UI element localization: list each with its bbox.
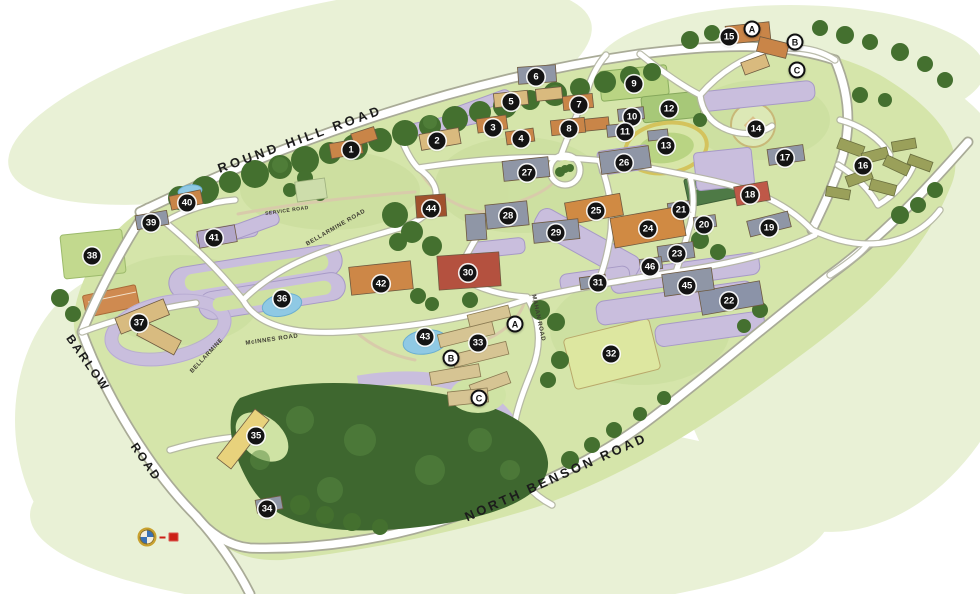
map-marker-17[interactable]: 17	[777, 150, 794, 167]
map-marker-30[interactable]: 30	[460, 265, 477, 282]
map-marker-25[interactable]: 25	[588, 203, 605, 220]
compass-rose	[138, 528, 179, 547]
map-marker-37[interactable]: 37	[131, 315, 148, 332]
map-marker-40[interactable]: 40	[179, 195, 196, 212]
map-marker-43[interactable]: 43	[417, 329, 434, 346]
north-indicator-icon	[169, 533, 179, 542]
markers-layer: 1234567891011121314151617181920212223242…	[0, 0, 980, 594]
map-marker-21[interactable]: 21	[673, 202, 690, 219]
compass-pointer-icon	[160, 536, 166, 538]
map-marker-b[interactable]: B	[443, 350, 460, 367]
compass-icon	[138, 528, 157, 547]
map-marker-11[interactable]: 11	[617, 124, 634, 141]
map-marker-33[interactable]: 33	[470, 335, 487, 352]
map-marker-29[interactable]: 29	[548, 225, 565, 242]
map-marker-45[interactable]: 45	[679, 278, 696, 295]
map-marker-27[interactable]: 27	[519, 165, 536, 182]
map-marker-2[interactable]: 2	[429, 133, 446, 150]
map-marker-12[interactable]: 12	[661, 101, 678, 118]
map-marker-15[interactable]: 15	[721, 29, 738, 46]
map-marker-14[interactable]: 14	[748, 121, 765, 138]
map-marker-5[interactable]: 5	[503, 94, 520, 111]
map-marker-46[interactable]: 46	[642, 259, 659, 276]
map-marker-18[interactable]: 18	[742, 187, 759, 204]
map-marker-a[interactable]: A	[744, 21, 761, 38]
map-marker-19[interactable]: 19	[761, 220, 778, 237]
map-marker-44[interactable]: 44	[423, 201, 440, 218]
map-marker-4[interactable]: 4	[513, 131, 530, 148]
map-marker-20[interactable]: 20	[696, 217, 713, 234]
map-marker-26[interactable]: 26	[616, 155, 633, 172]
map-marker-3[interactable]: 3	[485, 120, 502, 137]
map-marker-34[interactable]: 34	[259, 501, 276, 518]
map-marker-28[interactable]: 28	[500, 208, 517, 225]
map-marker-36[interactable]: 36	[274, 291, 291, 308]
map-marker-35[interactable]: 35	[248, 428, 265, 445]
map-marker-22[interactable]: 22	[721, 293, 738, 310]
map-marker-8[interactable]: 8	[561, 121, 578, 138]
map-marker-c[interactable]: C	[471, 390, 488, 407]
map-marker-c[interactable]: C	[789, 62, 806, 79]
map-marker-39[interactable]: 39	[143, 215, 160, 232]
map-marker-24[interactable]: 24	[640, 221, 657, 238]
map-marker-32[interactable]: 32	[603, 346, 620, 363]
map-marker-6[interactable]: 6	[528, 69, 545, 86]
map-marker-9[interactable]: 9	[626, 76, 643, 93]
map-marker-41[interactable]: 41	[206, 230, 223, 247]
map-marker-31[interactable]: 31	[590, 275, 607, 292]
map-marker-42[interactable]: 42	[373, 276, 390, 293]
map-marker-7[interactable]: 7	[571, 97, 588, 114]
map-marker-23[interactable]: 23	[669, 246, 686, 263]
map-marker-13[interactable]: 13	[658, 138, 675, 155]
map-marker-16[interactable]: 16	[855, 158, 872, 175]
map-marker-1[interactable]: 1	[343, 142, 360, 159]
map-marker-38[interactable]: 38	[84, 248, 101, 265]
map-marker-b[interactable]: B	[787, 34, 804, 51]
map-marker-a[interactable]: A	[507, 316, 524, 333]
campus-map: ROUND HILL ROADNORTH BENSON ROADBARLOWRO…	[0, 0, 980, 594]
